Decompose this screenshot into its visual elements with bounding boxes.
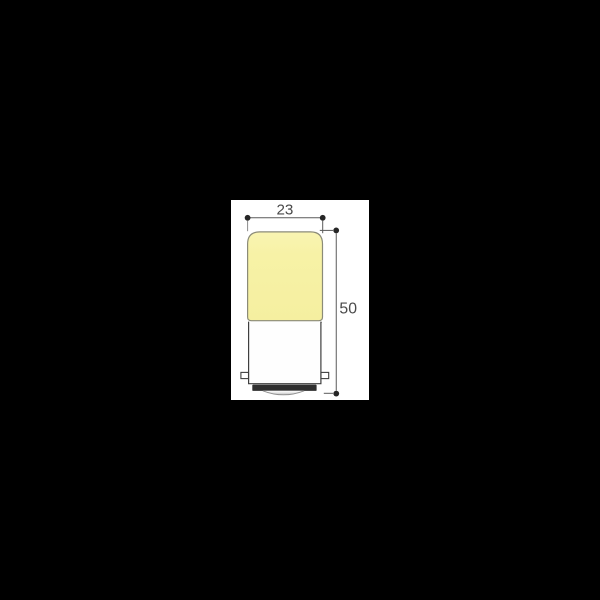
svg-text:23: 23 — [276, 201, 293, 218]
svg-text:50: 50 — [339, 300, 357, 317]
